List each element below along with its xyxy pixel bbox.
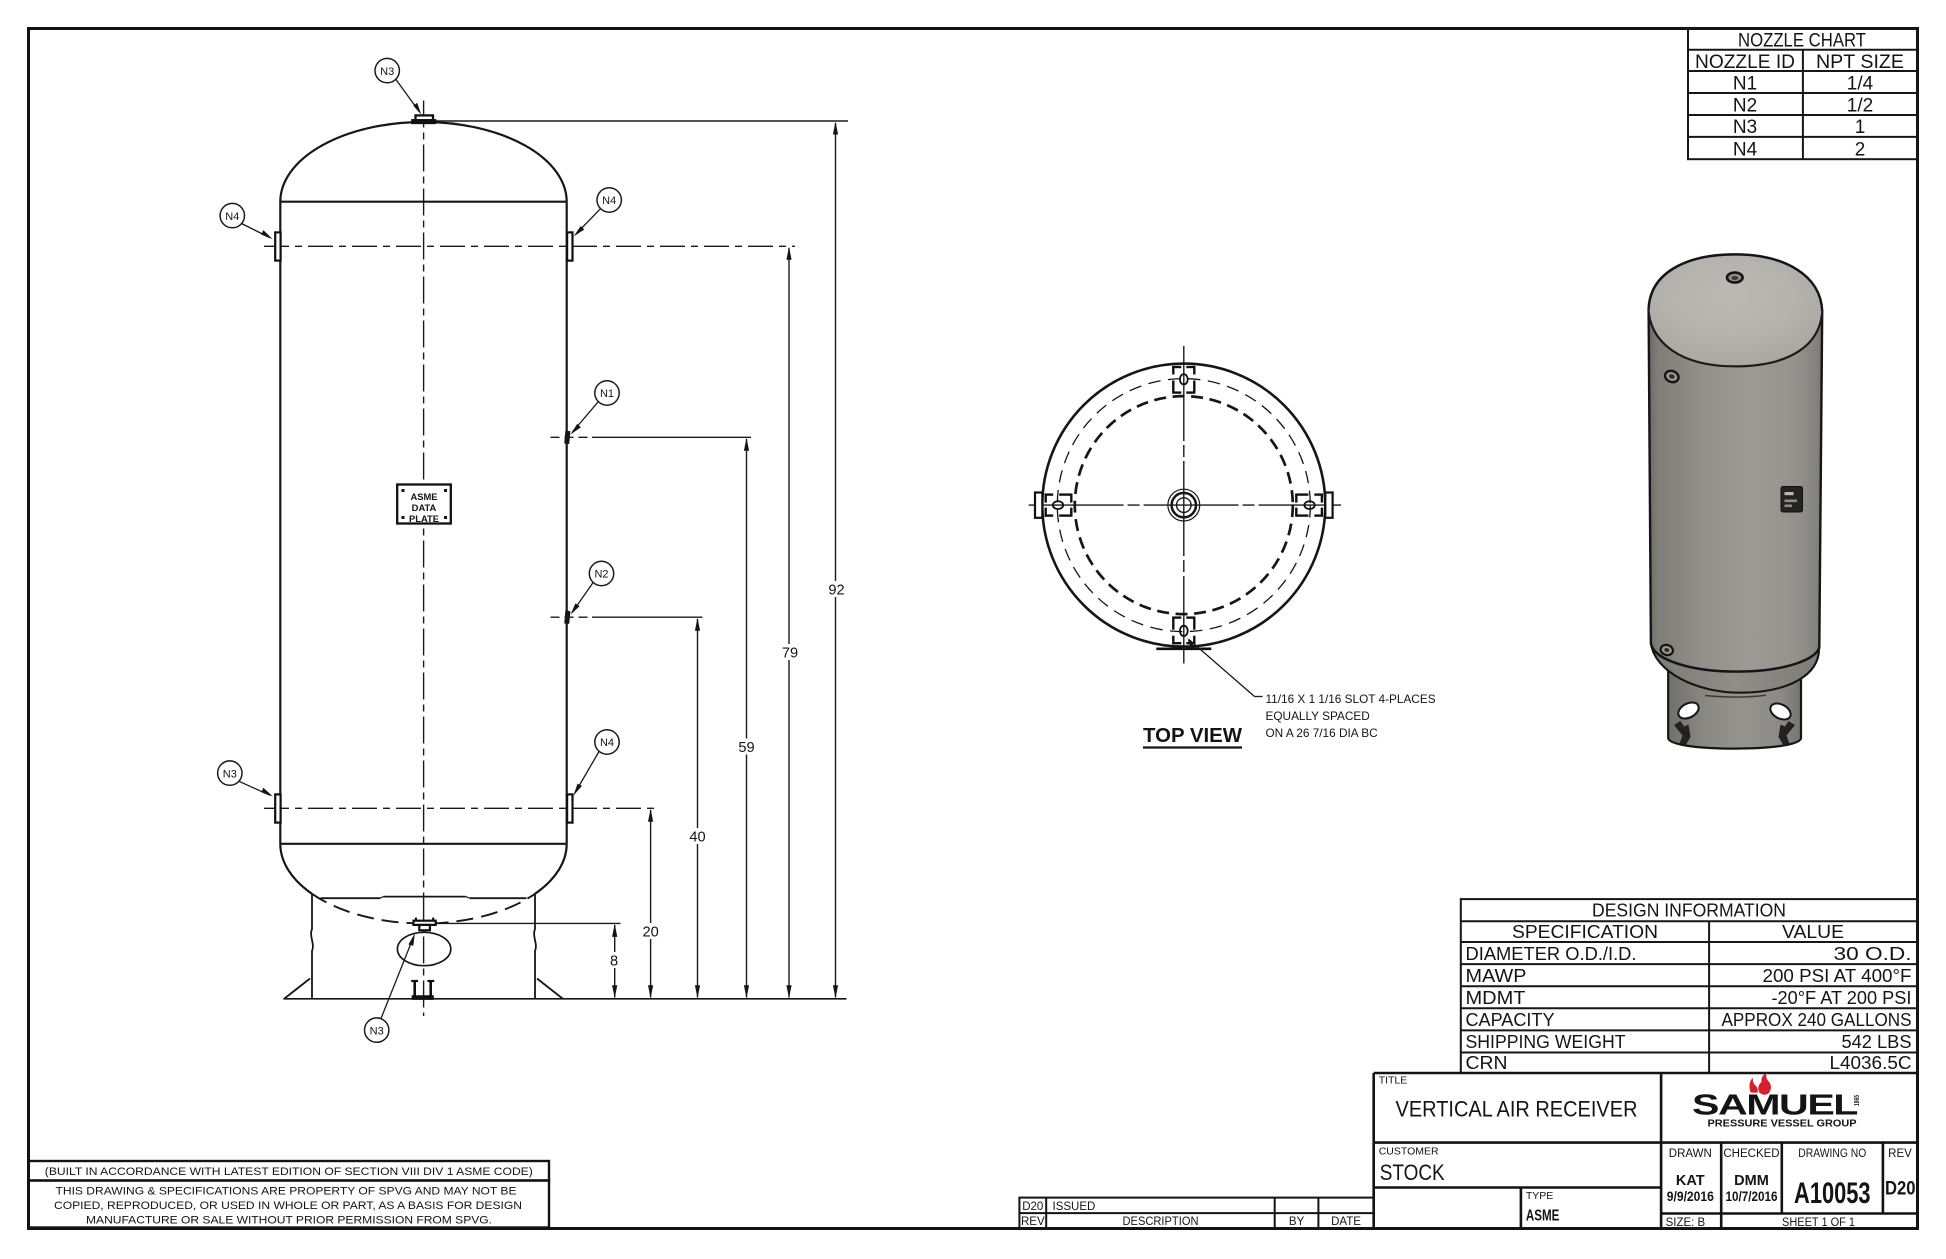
svg-text:1/2: 1/2 xyxy=(1847,95,1873,116)
svg-text:D20: D20 xyxy=(1885,1179,1916,1200)
svg-text:N3: N3 xyxy=(223,768,237,780)
svg-text:KAT: KAT xyxy=(1676,1173,1705,1189)
svg-text:CHECKED: CHECKED xyxy=(1723,1148,1779,1160)
svg-text:TYPE: TYPE xyxy=(1526,1190,1553,1202)
svg-text:20: 20 xyxy=(642,925,658,941)
svg-text:1: 1 xyxy=(1855,117,1866,138)
svg-text:(BUILT IN ACCORDANCE WITH LATE: (BUILT IN ACCORDANCE WITH LATEST EDITION… xyxy=(45,1166,533,1178)
svg-text:MDMT: MDMT xyxy=(1466,987,1526,1008)
svg-text:SHIPPING WEIGHT: SHIPPING WEIGHT xyxy=(1466,1031,1626,1052)
svg-text:200 PSI AT 400°F: 200 PSI AT 400°F xyxy=(1763,965,1912,986)
svg-text:DMM: DMM xyxy=(1734,1173,1769,1189)
svg-text:REV: REV xyxy=(1888,1148,1912,1160)
svg-text:30 O.D.: 30 O.D. xyxy=(1834,943,1912,964)
svg-text:THIS DRAWING & SPECIFICATIONS: THIS DRAWING & SPECIFICATIONS ARE PROPER… xyxy=(56,1186,517,1198)
svg-text:DRAWN: DRAWN xyxy=(1669,1148,1712,1160)
svg-text:REV: REV xyxy=(1021,1216,1045,1228)
svg-text:SAMUEL: SAMUEL xyxy=(1692,1090,1858,1122)
svg-text:DATA: DATA xyxy=(412,502,437,513)
svg-text:11/16 X 1 1/16 SLOT 4-PLACES: 11/16 X 1 1/16 SLOT 4-PLACES xyxy=(1266,692,1436,706)
svg-text:N4: N4 xyxy=(602,195,616,207)
svg-text:SPECIFICATION: SPECIFICATION xyxy=(1512,921,1658,942)
svg-text:40: 40 xyxy=(689,830,705,846)
svg-text:TOP VIEW: TOP VIEW xyxy=(1143,724,1243,747)
svg-text:1865: 1865 xyxy=(1852,1095,1861,1106)
svg-text:BY: BY xyxy=(1289,1216,1305,1228)
svg-text:9/9/2016: 9/9/2016 xyxy=(1667,1188,1714,1204)
svg-text:APPROX 240 GALLONS: APPROX 240 GALLONS xyxy=(1722,1009,1912,1030)
svg-text:STOCK: STOCK xyxy=(1380,1160,1445,1185)
svg-text:ISSUED: ISSUED xyxy=(1053,1201,1096,1213)
svg-text:L4036.5C: L4036.5C xyxy=(1830,1052,1912,1073)
svg-text:N2: N2 xyxy=(1733,95,1757,116)
svg-text:DESIGN INFORMATION: DESIGN INFORMATION xyxy=(1592,900,1786,921)
svg-text:CUSTOMER: CUSTOMER xyxy=(1379,1146,1439,1158)
svg-text:-20°F AT 200 PSI: -20°F AT 200 PSI xyxy=(1772,987,1912,1008)
svg-text:EQUALLY SPACED: EQUALLY SPACED xyxy=(1266,709,1370,723)
svg-text:N3: N3 xyxy=(370,1025,384,1037)
svg-text:D20: D20 xyxy=(1022,1201,1043,1213)
svg-text:N1: N1 xyxy=(600,388,614,400)
svg-text:N3: N3 xyxy=(1733,117,1757,138)
svg-text:NOZZLE CHART: NOZZLE CHART xyxy=(1738,31,1866,52)
svg-text:92: 92 xyxy=(828,583,844,599)
svg-text:VERTICAL AIR RECEIVER: VERTICAL AIR RECEIVER xyxy=(1396,1097,1638,1122)
svg-text:PLATE: PLATE xyxy=(409,513,439,524)
svg-text:N3: N3 xyxy=(380,66,394,78)
svg-text:COPIED, REPRODUCED, OR USED IN: COPIED, REPRODUCED, OR USED IN WHOLE OR … xyxy=(54,1200,522,1212)
svg-text:542 LBS: 542 LBS xyxy=(1842,1031,1912,1052)
svg-text:2: 2 xyxy=(1855,140,1866,161)
svg-text:N4: N4 xyxy=(225,211,239,223)
svg-text:N4: N4 xyxy=(600,737,614,749)
svg-text:VALUE: VALUE xyxy=(1782,921,1844,942)
svg-text:ASME: ASME xyxy=(410,491,437,502)
svg-text:8: 8 xyxy=(610,954,618,970)
svg-text:PRESSURE VESSEL GROUP: PRESSURE VESSEL GROUP xyxy=(1708,1119,1858,1130)
svg-text:TITLE: TITLE xyxy=(1379,1075,1408,1087)
svg-text:DIAMETER O.D./I.D.: DIAMETER O.D./I.D. xyxy=(1466,943,1637,964)
svg-text:CAPACITY: CAPACITY xyxy=(1466,1009,1555,1030)
svg-text:N4: N4 xyxy=(1733,140,1758,161)
svg-text:DESCRIPTION: DESCRIPTION xyxy=(1123,1216,1199,1228)
svg-text:MAWP: MAWP xyxy=(1466,965,1527,986)
svg-text:10/7/2016: 10/7/2016 xyxy=(1726,1188,1778,1204)
svg-text:59: 59 xyxy=(738,740,754,756)
svg-text:SIZE: B: SIZE: B xyxy=(1666,1217,1706,1229)
svg-text:ASME: ASME xyxy=(1526,1208,1560,1225)
svg-text:1/4: 1/4 xyxy=(1847,73,1874,94)
svg-text:CRN: CRN xyxy=(1466,1052,1508,1073)
svg-text:79: 79 xyxy=(782,646,798,662)
svg-text:MANUFACTURE OR SALE WITHOUT PR: MANUFACTURE OR SALE WITHOUT PRIOR PERMIS… xyxy=(86,1215,492,1227)
svg-text:N1: N1 xyxy=(1733,73,1757,94)
svg-text:N2: N2 xyxy=(594,569,608,581)
svg-text:A10053: A10053 xyxy=(1794,1177,1871,1210)
svg-text:DRAWING NO: DRAWING NO xyxy=(1798,1148,1866,1160)
svg-text:DATE: DATE xyxy=(1331,1216,1361,1228)
svg-text:ON A 26 7/16 DIA BC: ON A 26 7/16 DIA BC xyxy=(1266,726,1379,740)
svg-text:NPT SIZE: NPT SIZE xyxy=(1816,52,1904,73)
svg-text:NOZZLE ID: NOZZLE ID xyxy=(1695,52,1795,73)
svg-text:SHEET 1 OF 1: SHEET 1 OF 1 xyxy=(1782,1217,1855,1229)
